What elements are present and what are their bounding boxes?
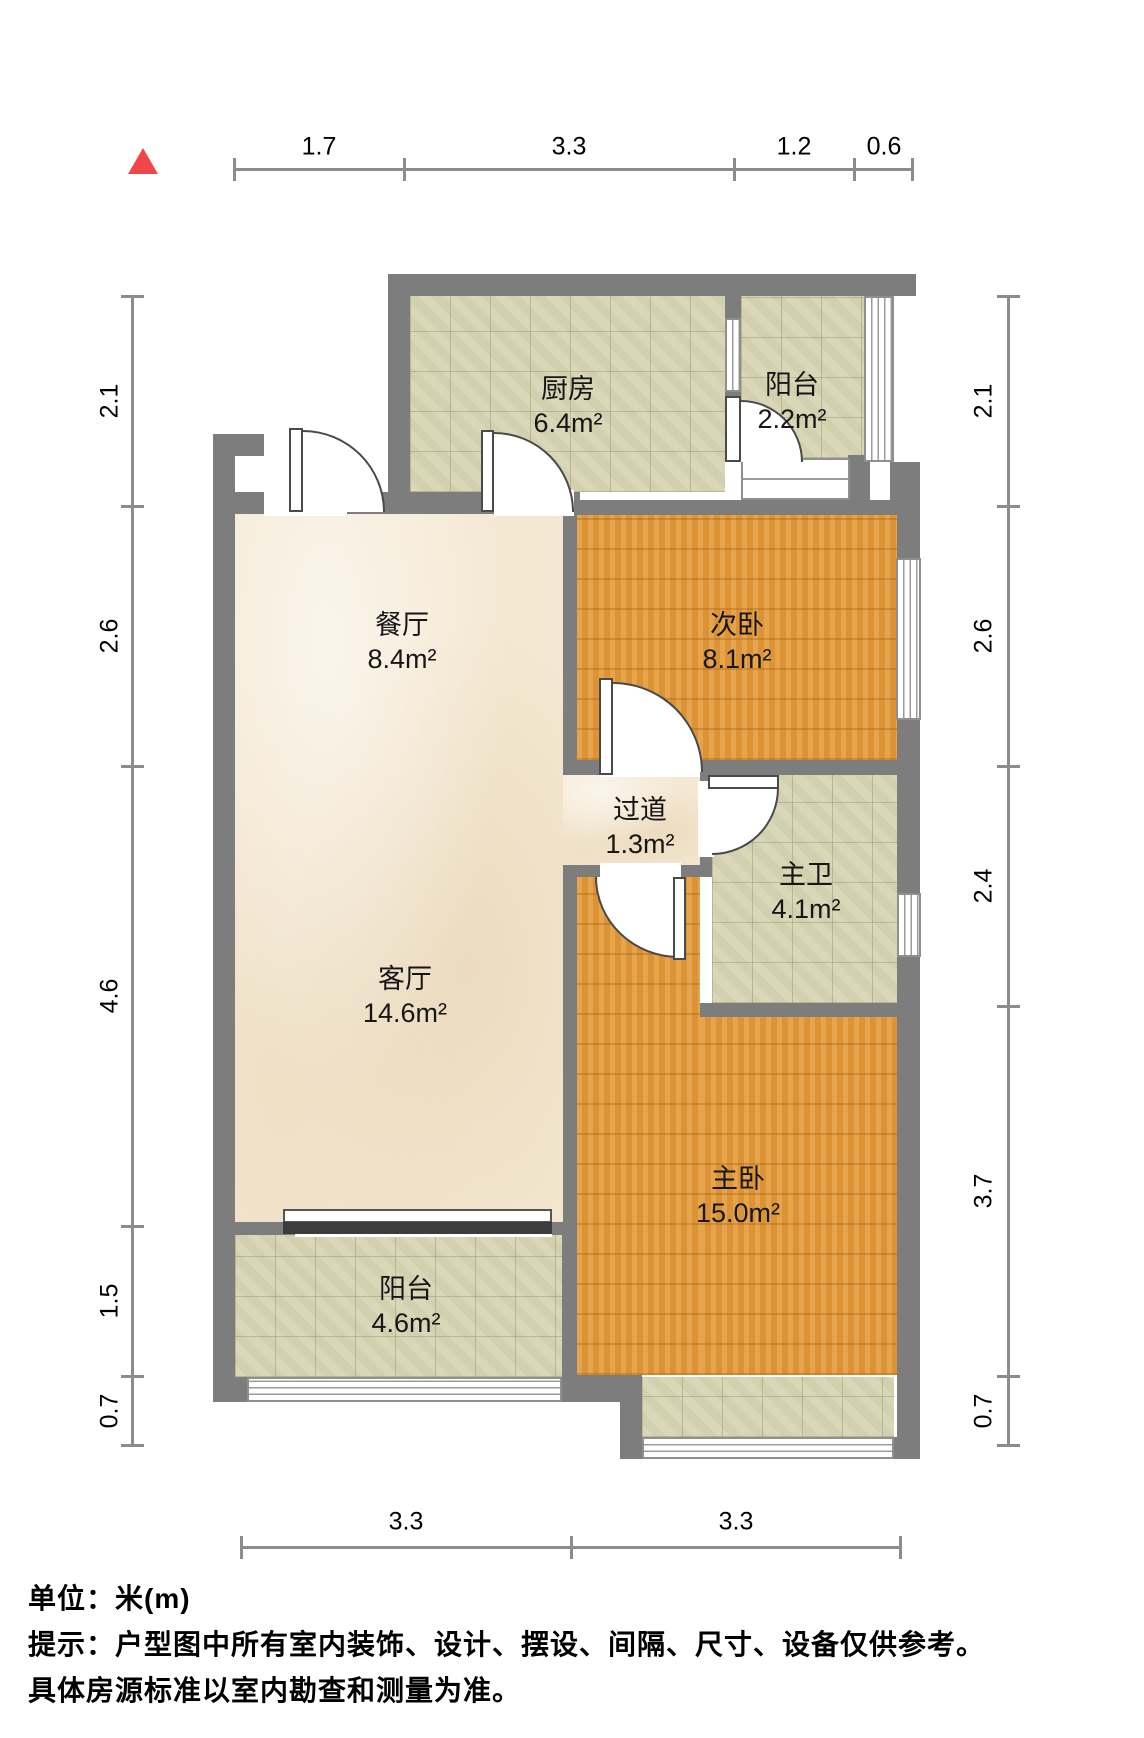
dim-tick	[911, 158, 914, 181]
dim-line-right	[1007, 296, 1010, 1446]
dim-label-top-2: 3.3	[552, 133, 587, 162]
dim-label-right-5: 0.7	[970, 1394, 999, 1429]
bedroom2-window	[896, 558, 921, 720]
wall-top-block	[388, 274, 916, 296]
dim-tick	[121, 1225, 144, 1228]
room-name: 餐厅	[367, 608, 436, 642]
dim-label-top-4: 0.6	[867, 133, 902, 162]
room-name: 阳台	[371, 1272, 440, 1306]
room-area: 8.1m²	[702, 642, 771, 676]
room-label-dining: 餐厅 8.4m²	[367, 608, 436, 676]
wall-bath-bottom	[700, 1003, 897, 1017]
dim-label-top-1: 1.7	[302, 133, 337, 162]
dim-tick	[121, 1375, 144, 1378]
bath-door-slab	[708, 775, 779, 789]
dim-label-bottom-2: 3.3	[719, 1508, 754, 1537]
room-name: 主卫	[771, 858, 840, 892]
room-area: 8.4m²	[367, 642, 436, 676]
dim-tick	[997, 1444, 1020, 1447]
entry-door-slab	[289, 428, 303, 512]
floor-plan-page: { "title": "户型图", "north_indicator": "no…	[0, 0, 1144, 1738]
wall-balcony-window-cap	[235, 1377, 247, 1402]
dim-label-right-4: 3.7	[970, 1174, 999, 1209]
room-area: 6.4m²	[533, 406, 602, 440]
dim-tick	[853, 158, 856, 181]
wall-bedroom2-top	[565, 500, 920, 515]
wall-living-master	[563, 865, 577, 1222]
dim-label-left-5: 0.7	[96, 1394, 125, 1429]
tip-note-2: 具体房源标准以室内勘查和测量为准。	[28, 1668, 985, 1714]
room-name: 次卧	[702, 608, 771, 642]
slider-door-rail	[283, 1209, 552, 1223]
room-name: 客厅	[363, 962, 447, 996]
dim-label-left-1: 2.1	[96, 384, 125, 419]
dim-tick	[121, 295, 144, 298]
dim-tick	[733, 158, 736, 181]
entry-door-arc	[303, 430, 385, 512]
dim-tick	[121, 765, 144, 768]
wall-kitchen-left	[388, 296, 410, 494]
kitchen-balcony-window	[725, 318, 741, 392]
room-area: 4.1m²	[771, 892, 840, 926]
balcony-bottom-window	[247, 1377, 562, 1402]
dim-label-left-4: 1.5	[96, 1284, 125, 1319]
room-area: 14.6m²	[363, 996, 447, 1030]
dim-tick	[997, 1375, 1020, 1378]
dim-tick	[240, 1536, 243, 1559]
room-label-hallway: 过道 1.3m²	[605, 793, 674, 861]
north-triangle-icon	[128, 148, 158, 174]
dim-line-left	[131, 296, 134, 1446]
room-name: 主卧	[696, 1162, 780, 1196]
room-label-living: 客厅 14.6m²	[363, 962, 447, 1030]
wall-living-bedroom2	[563, 514, 577, 775]
dim-label-left-2: 2.6	[96, 619, 125, 654]
dim-label-left-3: 4.6	[96, 979, 125, 1014]
wall-bay-right-stub	[894, 1437, 920, 1459]
tip-note: 提示：户型图中所有室内装饰、设计、摆设、间隔、尺寸、设备仅供参考。	[28, 1622, 985, 1668]
room-area: 1.3m²	[605, 827, 674, 861]
dim-tick	[570, 1536, 573, 1559]
room-label-kitchen: 厨房 6.4m²	[533, 372, 602, 440]
dim-tick	[997, 505, 1020, 508]
room-area: 4.6m²	[371, 1306, 440, 1340]
dim-tick	[121, 505, 144, 508]
balcony-top-right-window	[864, 296, 894, 462]
bedroom2-door-slab	[599, 678, 613, 775]
room-name: 阳台	[757, 368, 826, 402]
wall-entry-stub	[213, 434, 264, 456]
wall-bay-left	[620, 1377, 642, 1459]
room-area: 15.0m²	[696, 1196, 780, 1230]
footer-notes: 单位：米(m) 提示：户型图中所有室内装饰、设计、摆设、间隔、尺寸、设备仅供参考…	[28, 1576, 985, 1714]
slider-door-panel	[283, 1222, 552, 1234]
room-name: 厨房	[533, 372, 602, 406]
wall-left-outer	[213, 434, 235, 1402]
master-door-slab	[673, 877, 686, 960]
dim-label-right-2: 2.6	[970, 619, 999, 654]
room-label-bedroom-second: 次卧 8.1m²	[702, 608, 771, 676]
unit-note: 单位：米(m)	[28, 1576, 985, 1622]
room-area: 2.2m²	[757, 402, 826, 436]
wall-balcony-top-right	[550, 1222, 577, 1235]
dim-label-right-1: 2.1	[970, 384, 999, 419]
dim-tick	[233, 158, 236, 181]
dim-tick	[403, 158, 406, 181]
room-label-balcony-bottom: 阳台 4.6m²	[371, 1272, 440, 1340]
kitchen-door-slab	[481, 430, 494, 512]
bay-floor	[642, 1377, 894, 1437]
dim-tick	[997, 1005, 1020, 1008]
bay-window	[642, 1437, 894, 1459]
dim-label-right-3: 2.4	[970, 869, 999, 904]
dim-line-top	[234, 168, 914, 171]
room-label-bedroom-master: 主卧 15.0m²	[696, 1162, 780, 1230]
dim-tick	[997, 295, 1020, 298]
dim-label-bottom-1: 3.3	[389, 1508, 424, 1537]
room-label-balcony-top: 阳台 2.2m²	[757, 368, 826, 436]
dim-tick	[121, 1444, 144, 1447]
balcony-top-door-slab	[725, 396, 741, 462]
balcony-bedroom2-window	[741, 458, 850, 500]
dim-label-top-3: 1.2	[777, 133, 812, 162]
dim-tick	[997, 765, 1020, 768]
bath-window	[897, 893, 921, 957]
dim-tick	[899, 1536, 902, 1559]
room-label-bath-master: 主卫 4.1m²	[771, 858, 840, 926]
room-name: 过道	[605, 793, 674, 827]
